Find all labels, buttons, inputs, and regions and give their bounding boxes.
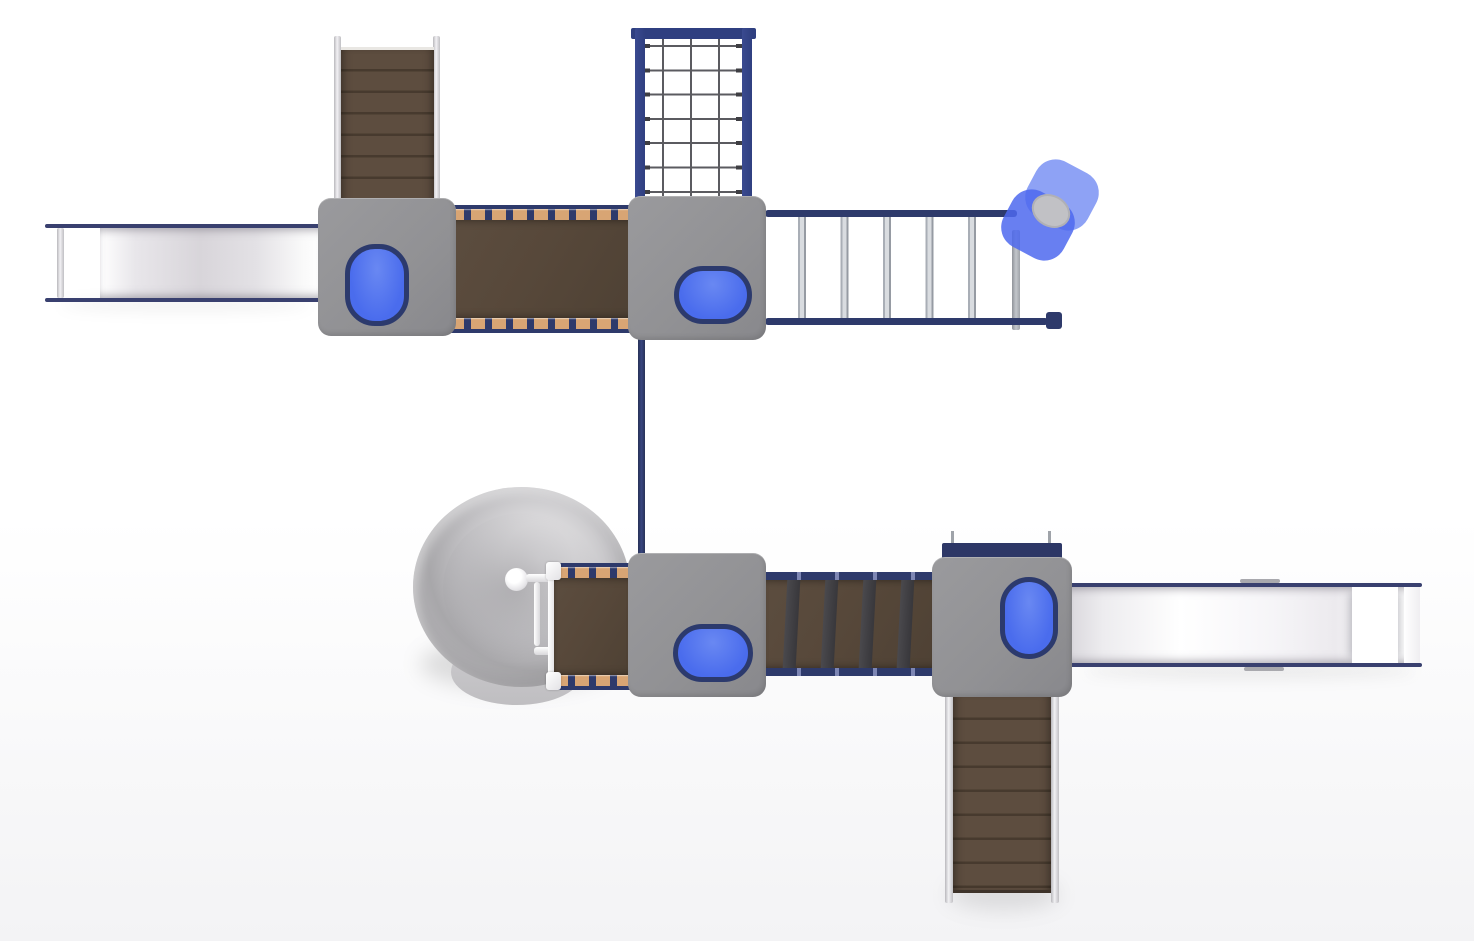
platform-se-hatch — [1000, 577, 1058, 659]
dish-center-post — [505, 568, 528, 591]
ramp-south-rail — [554, 686, 632, 690]
ramp-bracket-bottom — [546, 672, 561, 690]
platform-n-hatch — [674, 266, 752, 324]
bridge-top-south-rail — [450, 329, 635, 333]
bridge-bottom-north-rail — [763, 572, 937, 580]
stairs-top — [330, 36, 444, 204]
net-rope-vertical — [718, 34, 720, 200]
bridge-bottom-south-rail — [763, 668, 937, 676]
net-rope-vertical — [690, 34, 692, 200]
net-rope-vertical — [662, 34, 664, 200]
platform-nw-hatch — [345, 244, 409, 326]
ladder-end-cap — [1046, 312, 1062, 329]
ladder-rungs — [798, 217, 980, 318]
bridge-top-deck — [450, 220, 635, 318]
ladder-bottom-rail — [765, 318, 1048, 325]
stairs-top-right-rail — [433, 36, 440, 203]
slide-left-bottom-rail — [45, 298, 322, 302]
slide-left — [45, 220, 322, 304]
stairs-bottom-left-rail — [945, 693, 953, 903]
stairs-top-left-rail — [334, 36, 341, 203]
ramp-south-cleats — [554, 675, 632, 686]
ramp-north-cleats — [554, 567, 632, 578]
stairs-bottom — [945, 693, 1060, 905]
ramp-deck — [554, 578, 632, 675]
slide-right — [1068, 579, 1428, 671]
stairs-bottom-treads — [953, 696, 1051, 893]
playground-render — [0, 0, 1474, 941]
slide-left-bed — [100, 228, 322, 298]
slide-right-exit-band — [1404, 587, 1420, 663]
slide-left-end-post — [57, 228, 64, 298]
bridge-bottom — [763, 572, 937, 676]
ladder-top-rail — [765, 210, 1017, 217]
net-frame-top-bar — [631, 28, 756, 39]
ramp-bottom — [546, 562, 632, 690]
transfer-pole — [638, 336, 645, 558]
bridge-top-north-cleats — [450, 209, 635, 220]
platform-s-hatch — [673, 624, 753, 682]
slide-left-top-rail — [45, 224, 322, 228]
net-ropes-horizontal — [645, 45, 742, 195]
net-frame-right-post — [742, 28, 752, 200]
bridge-top-south-cleats — [450, 318, 635, 329]
dish-entry-side-bar — [534, 582, 540, 646]
slide-right-exit-hump — [1352, 587, 1398, 663]
slide-right-bottom-tab — [1244, 667, 1284, 671]
bridge-top — [450, 205, 635, 333]
ramp-bracket-top — [546, 562, 561, 580]
net-frame-left-post — [635, 28, 645, 200]
flower-spinner — [1002, 168, 1098, 256]
stairs-top-treads — [341, 47, 434, 207]
slide-right-top-tab — [1240, 579, 1280, 583]
stairs-bottom-right-rail — [1051, 693, 1059, 903]
cargo-net — [631, 28, 756, 200]
slide-right-top-rail — [1068, 583, 1422, 587]
